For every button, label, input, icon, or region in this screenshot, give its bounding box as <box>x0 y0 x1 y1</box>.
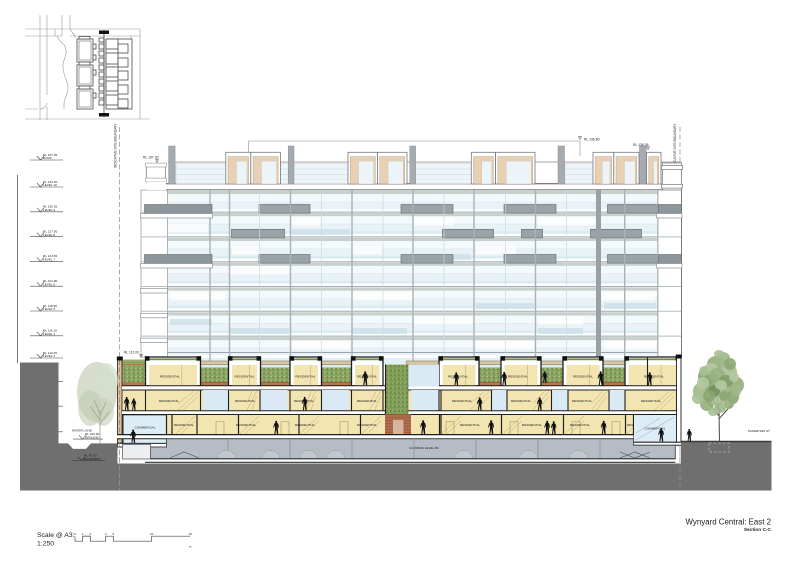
svg-text:LEVEL 8: LEVEL 8 <box>43 233 55 237</box>
svg-text:GROUND: GROUND <box>85 435 100 439</box>
svg-text:RESIDENTIAL: RESIDENTIAL <box>452 399 473 403</box>
svg-text:1:250: 1:250 <box>37 541 54 548</box>
svg-text:RL 136.80: RL 136.80 <box>584 138 600 142</box>
svg-text:RESIDENTIAL: RESIDENTIAL <box>234 375 255 379</box>
svg-text:LEVEL 4: LEVEL 4 <box>43 332 55 336</box>
svg-text:INDICATIVE SITE BOUNDARY: INDICATIVE SITE BOUNDARY <box>673 123 677 168</box>
svg-text:LEVEL 6: LEVEL 6 <box>43 282 55 286</box>
svg-text:INDICATIVE SITE BOUNDARY: INDICATIVE SITE BOUNDARY <box>114 123 118 168</box>
svg-text:LEVEL 9: LEVEL 9 <box>43 208 55 212</box>
svg-text:RESIDENTIAL: RESIDENTIAL <box>641 399 662 403</box>
svg-text:RESIDENTIAL: RESIDENTIAL <box>460 423 481 427</box>
svg-text:COMMERCIAL: COMMERCIAL <box>645 427 666 431</box>
svg-text:LEVEL 10: LEVEL 10 <box>43 183 57 187</box>
svg-text:RESIDENTIAL: RESIDENTIAL <box>159 399 180 403</box>
svg-text:Wynyard Central: East 2: Wynyard Central: East 2 <box>686 518 771 527</box>
svg-text:10: 10 <box>150 532 154 536</box>
svg-text:RESIDENTIAL: RESIDENTIAL <box>174 423 195 427</box>
svg-text:Section C-C: Section C-C <box>744 527 772 533</box>
svg-text:BASEMENT: BASEMENT <box>84 457 101 461</box>
svg-text:RESIDENTIAL: RESIDENTIAL <box>508 375 529 379</box>
svg-text:RESIDENTIAL: RESIDENTIAL <box>511 399 532 403</box>
svg-text:RESIDENTIAL: RESIDENTIAL <box>572 399 593 403</box>
svg-text:RESIDENTIAL: RESIDENTIAL <box>570 423 591 427</box>
svg-text:RL 136.05: RL 136.05 <box>633 143 649 147</box>
svg-text:PAKENHAM ST: PAKENHAM ST <box>748 429 770 433</box>
svg-text:COMMERCIAL: COMMERCIAL <box>135 426 156 430</box>
svg-text:RESIDENTIAL: RESIDENTIAL <box>235 399 256 403</box>
svg-text:15: 15 <box>188 532 192 536</box>
svg-text:Scale @ A3:: Scale @ A3: <box>37 532 75 539</box>
svg-text:RESIDENTIAL: RESIDENTIAL <box>357 399 378 403</box>
svg-text:LEVEL 7: LEVEL 7 <box>43 258 55 262</box>
svg-text:RL 112.00: RL 112.00 <box>124 351 139 355</box>
svg-text:RESIDENTIAL: RESIDENTIAL <box>160 375 181 379</box>
svg-text:LEVEL 5: LEVEL 5 <box>43 307 55 311</box>
svg-text:RESIDENTIAL: RESIDENTIAL <box>295 375 316 379</box>
svg-text:RESIDENTIAL: RESIDENTIAL <box>573 375 594 379</box>
svg-text:RESIDENTIAL: RESIDENTIAL <box>522 423 543 427</box>
svg-text:ROOF: ROOF <box>43 156 52 160</box>
svg-text:RESIDENTIAL: RESIDENTIAL <box>236 423 257 427</box>
svg-text:LEVEL 3: LEVEL 3 <box>43 354 55 358</box>
svg-text:RESIDENTIAL: RESIDENTIAL <box>644 375 665 379</box>
svg-text:RESIDENTIAL: RESIDENTIAL <box>295 423 316 427</box>
svg-text:RESIDENTIAL: RESIDENTIAL <box>357 423 378 427</box>
svg-text:RL 137.30: RL 137.30 <box>143 156 159 160</box>
